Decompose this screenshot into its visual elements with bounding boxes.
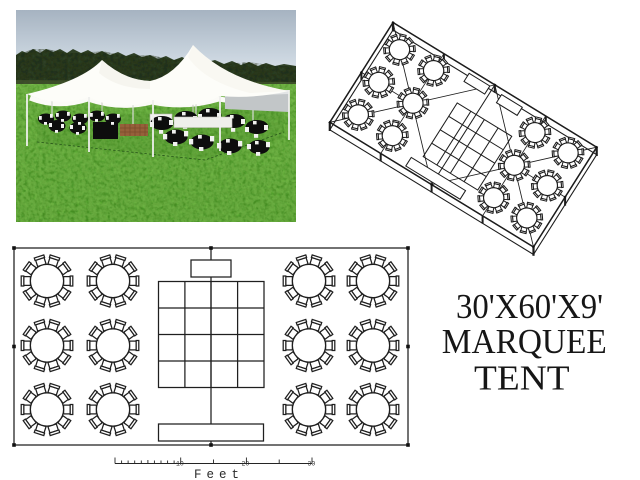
- svg-text:TENT: TENT: [474, 359, 570, 398]
- svg-text:30'X60'X9': 30'X60'X9': [456, 287, 603, 326]
- svg-text:Feet: Feet: [194, 468, 244, 480]
- svg-text:20: 20: [242, 461, 250, 468]
- svg-text:30: 30: [308, 461, 316, 468]
- svg-text:MARQUEE: MARQUEE: [442, 322, 607, 361]
- svg-text:10: 10: [176, 461, 184, 468]
